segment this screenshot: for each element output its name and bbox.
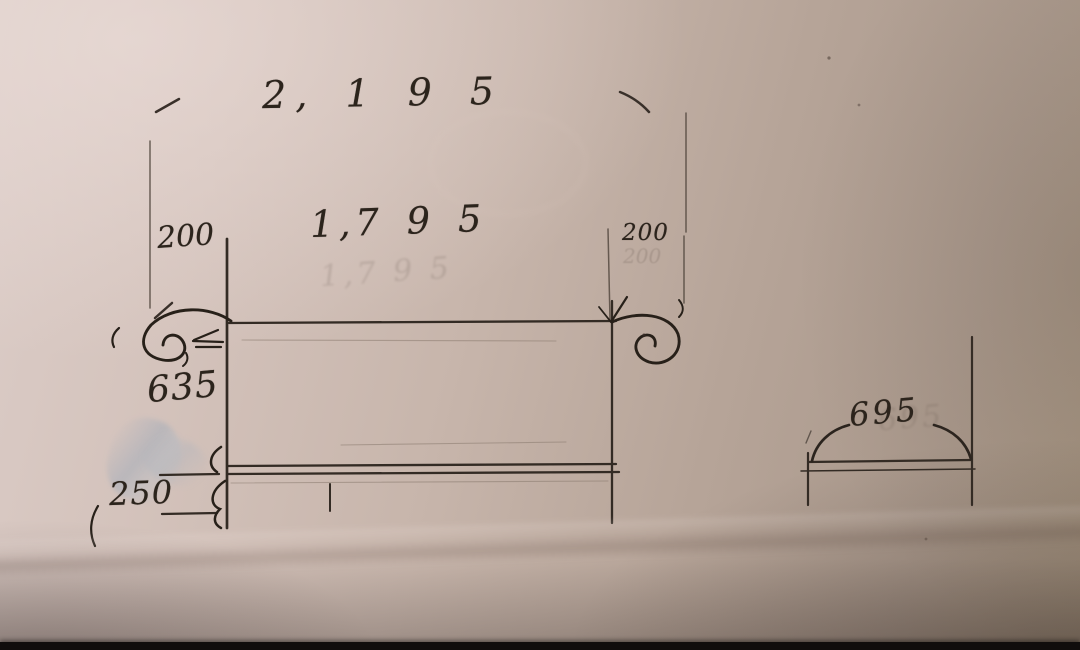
corner-scribbles <box>91 297 683 546</box>
faint-guide-lines <box>231 340 608 483</box>
table-edge-shadow <box>0 642 1080 650</box>
dimension-right-offset: 200 <box>622 222 669 245</box>
dimension-inner-width: 1,7 9 5 <box>309 200 487 243</box>
dimension-depth: 695 <box>848 393 921 431</box>
dust-specks <box>0 0 2 2</box>
paper-photo: 1,7 9 5 200 695 <box>0 0 1080 650</box>
dimension-base-height: 250 <box>108 476 173 510</box>
front-view-outline <box>227 239 619 528</box>
dimension-height: 635 <box>146 367 221 409</box>
dimension-overall-width: 2, 1 9 5 <box>262 72 504 114</box>
dimension-left-offset: 200 <box>156 220 215 254</box>
